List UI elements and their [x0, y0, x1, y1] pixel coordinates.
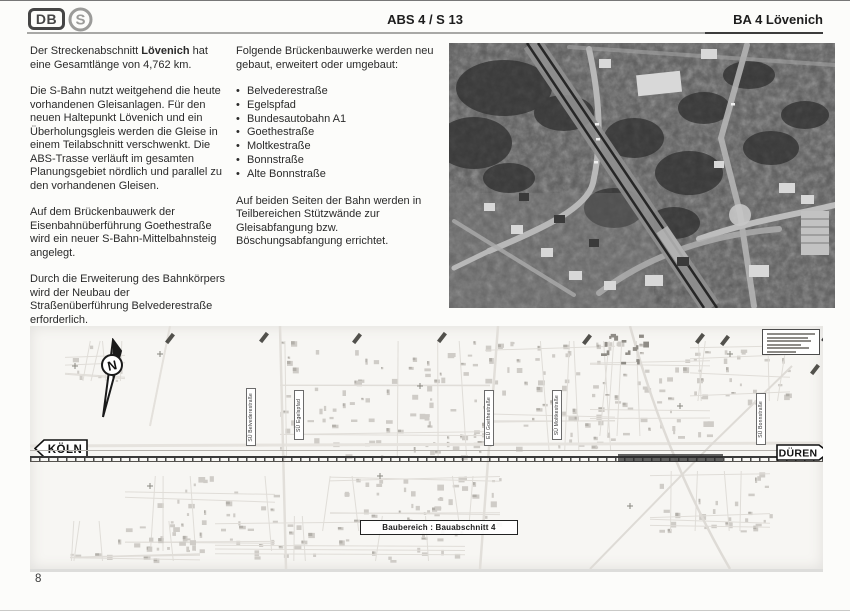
bridges-intro: Folgende Brückenbauwerke werden neu geba… [236, 45, 443, 72]
paragraph-bridge: Auf dem Brückenbauwerk der Eisenbahn­übe… [30, 206, 231, 260]
left-text-column: Der Streckenabschnitt Lövenich hat eine … [30, 45, 231, 340]
list-item: Goethestraße [236, 126, 443, 140]
list-item: Bundesautobahn A1 [236, 113, 443, 127]
aerial-photo [449, 43, 835, 308]
brochure-page: DB S ABS 4 / S 13 BA 4 Lövenich Der Stre… [0, 0, 850, 611]
north-arrow-icon: N [88, 338, 134, 420]
site-map: N KÖLN DÜREN SÜ Belvederestraße SÜ Egels… [30, 326, 823, 569]
page-number: 8 [35, 573, 41, 585]
para1-pre: Der Streckenabschnitt [30, 45, 141, 57]
station-segment [618, 454, 723, 462]
paragraph-length: Der Streckenabschnitt Lövenich hat eine … [30, 45, 231, 72]
list-item: Egelspfad [236, 99, 443, 113]
map-legend-box [762, 329, 820, 355]
bridge-label: SÜ Egelspfad [294, 390, 304, 440]
list-item: Belvederestraße [236, 85, 443, 99]
header-right-title: BA 4 Lövenich [733, 12, 823, 27]
bridges-list: Belvederestraße Egelspfad Bundesautobahn… [236, 85, 443, 182]
dueren-direction-sign: DÜREN [776, 444, 823, 466]
middle-text-column: Folgende Brückenbauwerke werden neu geba… [236, 45, 443, 262]
bridge-label: SÜ Moltkestraße [552, 390, 562, 440]
construction-area-label: Baubereich : Bauabschnitt 4 [382, 523, 495, 532]
highrise-building [801, 211, 829, 255]
list-item: Moltkestraße [236, 140, 443, 154]
bridge-label: EÜ Goethestraße [484, 390, 494, 446]
header-center-title: ABS 4 / S 13 [0, 12, 850, 27]
header-rule [27, 32, 823, 34]
construction-area-box: Baubereich : Bauabschnitt 4 [360, 520, 518, 535]
second-track-line [30, 450, 823, 451]
list-item: Bonnstraße [236, 154, 443, 168]
bridge-label: SÜ Bonnstraße [756, 393, 766, 445]
dueren-sign-label: DÜREN [779, 447, 818, 460]
header-rule-accent [705, 32, 823, 34]
paragraph-belvedere: Durch die Erweiterung des Bahnkörpers wi… [30, 273, 231, 327]
bridge-label: SÜ Belvederestraße [246, 388, 256, 446]
para1-bold: Lövenich [141, 45, 189, 57]
walls-outro: Auf beiden Seiten der Bahn werden in Tei… [236, 195, 443, 249]
list-item: Alte Bonnstraße [236, 168, 443, 182]
paragraph-sbahn: Die S-Bahn nutzt weitgehend die heute vo… [30, 85, 231, 193]
